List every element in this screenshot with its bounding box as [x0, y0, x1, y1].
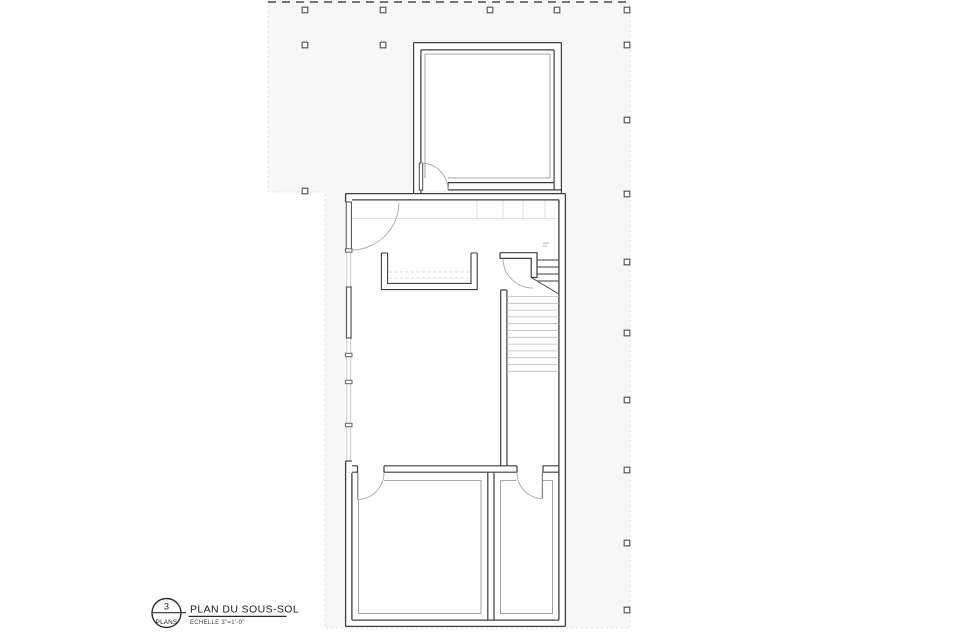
plan-title: PLAN DU SOUS-SOL	[190, 604, 299, 616]
basement-plan-canvas: 3 PLANS PLAN DU SOUS-SOL ECHELLE 3"=1'-0…	[0, 0, 960, 639]
mullion-mark	[345, 353, 352, 356]
grid-marker	[624, 191, 630, 197]
mullion-mark	[345, 423, 352, 426]
drawing-sheet: 3 PLANS PLAN DU SOUS-SOL ECHELLE 3"=1'-0…	[0, 0, 960, 639]
grid-marker	[302, 42, 308, 48]
sheet-label: PLANS	[156, 619, 178, 626]
grid-marker	[624, 117, 630, 123]
grid-marker	[624, 607, 630, 613]
grid-marker	[624, 540, 630, 546]
grid-marker	[624, 397, 630, 403]
grid-marker	[380, 7, 386, 13]
main-footprint	[345, 193, 566, 627]
grid-marker	[554, 7, 560, 13]
grid-marker	[624, 7, 630, 13]
grid-marker	[380, 42, 386, 48]
plan-scale: ECHELLE 3"=1'-0"	[190, 620, 245, 626]
mullion-mark	[345, 380, 352, 383]
grid-marker	[624, 467, 630, 473]
upper-room-footprint	[413, 42, 562, 190]
title-block: 3 PLANS PLAN DU SOUS-SOL ECHELLE 3"=1'-0…	[152, 599, 299, 628]
grid-marker	[624, 42, 630, 48]
sheet-number: 3	[164, 602, 169, 612]
grid-marker	[302, 7, 308, 13]
grid-marker	[624, 259, 630, 265]
grid-marker	[624, 330, 630, 336]
grid-marker	[487, 7, 493, 13]
door-leaf	[419, 163, 422, 190]
mullion-mark	[345, 249, 352, 252]
door-leaf	[346, 202, 351, 249]
grid-marker	[302, 188, 308, 194]
